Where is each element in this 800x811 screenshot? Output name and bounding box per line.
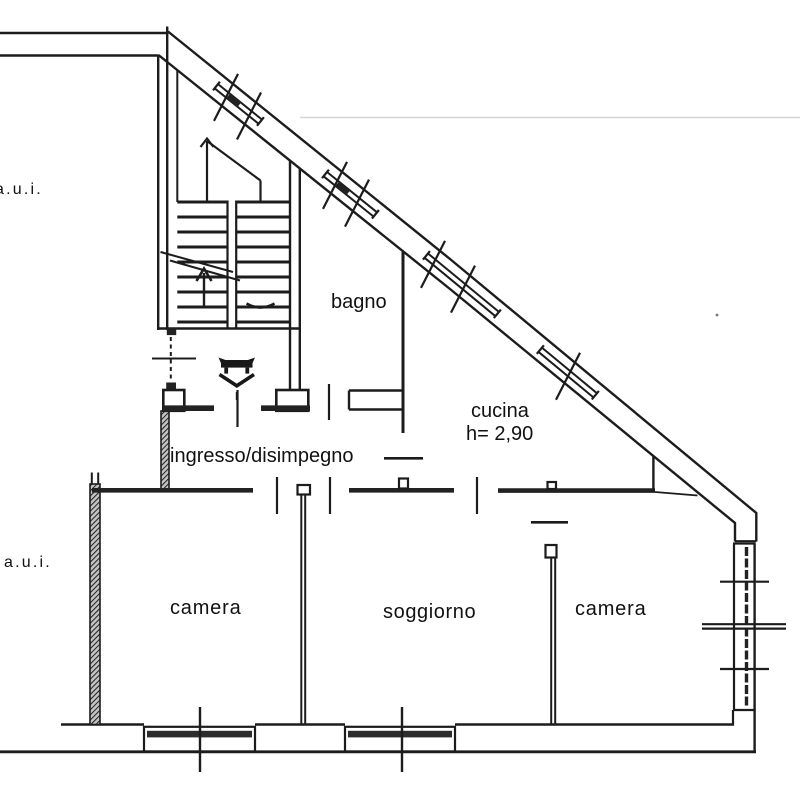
- svg-text:bagno: bagno: [331, 291, 387, 313]
- svg-text:camera: camera: [575, 598, 647, 620]
- svg-text:camera: camera: [170, 597, 242, 619]
- svg-text:ingresso/disimpegno: ingresso/disimpegno: [170, 445, 353, 467]
- svg-text:cucina: cucina: [471, 400, 530, 422]
- svg-text:h= 2,90: h= 2,90: [466, 423, 533, 445]
- svg-text:a.u.i.: a.u.i.: [4, 554, 52, 571]
- svg-text:soggiorno: soggiorno: [383, 601, 476, 623]
- svg-text:a.u.i.: a.u.i.: [0, 181, 43, 198]
